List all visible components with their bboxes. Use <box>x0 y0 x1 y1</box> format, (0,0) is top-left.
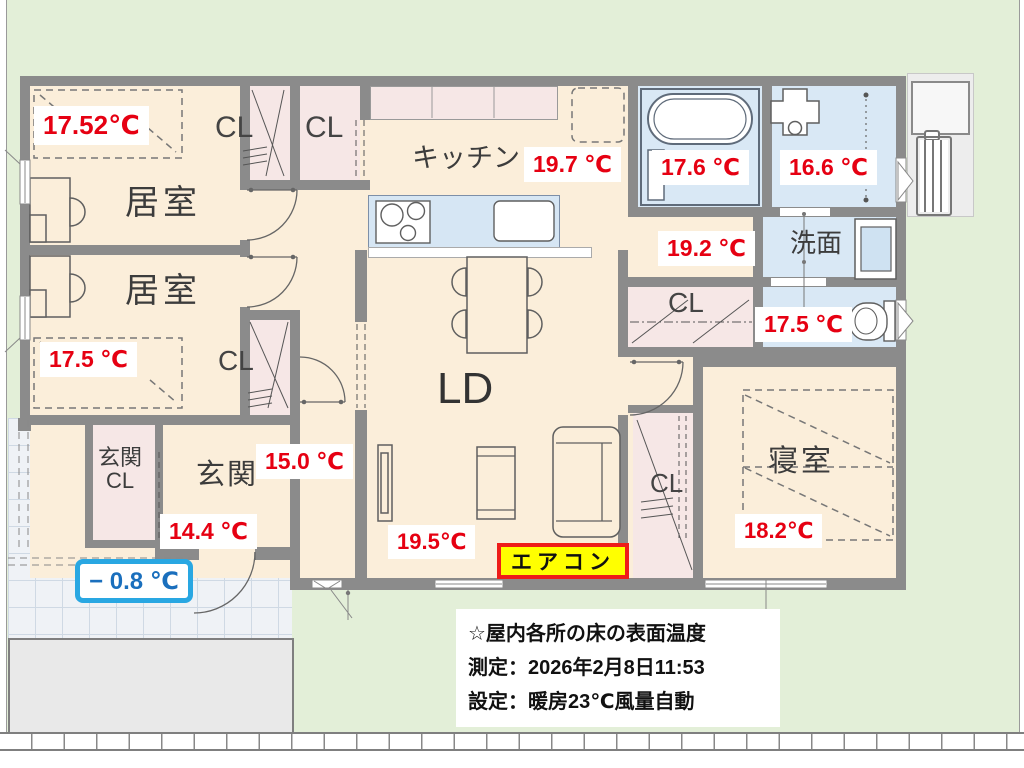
aircon-label: エアコン <box>511 546 615 576</box>
temp-label-room2: 17.5 ℃ <box>40 342 137 377</box>
room-label-cl-top-a: CL <box>215 112 253 144</box>
room-label-room1: 居室 <box>125 186 201 222</box>
room-label-genkan-cl: 玄関 CL <box>98 446 142 492</box>
room-label-cl-hall: CL <box>668 288 704 317</box>
room-label-bedroom: 寝室 <box>768 446 834 478</box>
room-label-kitchen: キッチン <box>412 144 520 172</box>
room-label-cl-mid: CL <box>218 346 254 375</box>
temp-label-laundry: 16.6 ℃ <box>780 150 877 185</box>
temp-label-bath: 17.6 ℃ <box>652 150 749 185</box>
outdoor-temp-value: − 0.8 ℃ <box>89 567 179 596</box>
outdoor-temp-box: − 0.8 ℃ <box>75 559 193 603</box>
room-label-cl-bedroom: CL <box>650 470 683 497</box>
temp-label-hall-sanitary: 19.2 ℃ <box>658 231 755 266</box>
room-label-genkan: 玄関 <box>196 460 258 490</box>
aircon-badge: エアコン <box>497 543 629 579</box>
genkan-cl-line2: CL <box>98 469 142 492</box>
notes-line-2: 測定：2026年2月8日11:53 <box>468 651 768 685</box>
temp-label-room1: 17.52℃ <box>34 106 149 145</box>
room-label-room2: 居室 <box>125 274 201 310</box>
room-label-cl-top-b: CL <box>305 112 343 144</box>
notes-line-3: 設定：暖房23℃風量自動 <box>468 685 768 719</box>
temp-label-genkan: 14.4 ℃ <box>160 514 257 549</box>
room-label-ld: LD <box>437 366 493 412</box>
floorplan-canvas: 居室 居室 CL CL CL キッチン LD 洗面 CL 寝室 CL 玄関 玄関… <box>0 0 1024 768</box>
notes-box: ☆屋内各所の床の表面温度 測定：2026年2月8日11:53 設定：暖房23℃風… <box>456 609 780 727</box>
temp-label-ld: 19.5℃ <box>388 525 475 559</box>
notes-line-1: ☆屋内各所の床の表面温度 <box>468 617 768 651</box>
temp-label-toilet: 17.5 ℃ <box>755 307 852 342</box>
temp-label-hall: 15.0 ℃ <box>256 444 353 479</box>
genkan-cl-line1: 玄関 <box>98 446 142 469</box>
temp-label-kitchen: 19.7 ℃ <box>524 147 621 182</box>
room-label-washroom: 洗面 <box>790 230 842 257</box>
temp-label-bedroom: 18.2℃ <box>735 514 822 548</box>
